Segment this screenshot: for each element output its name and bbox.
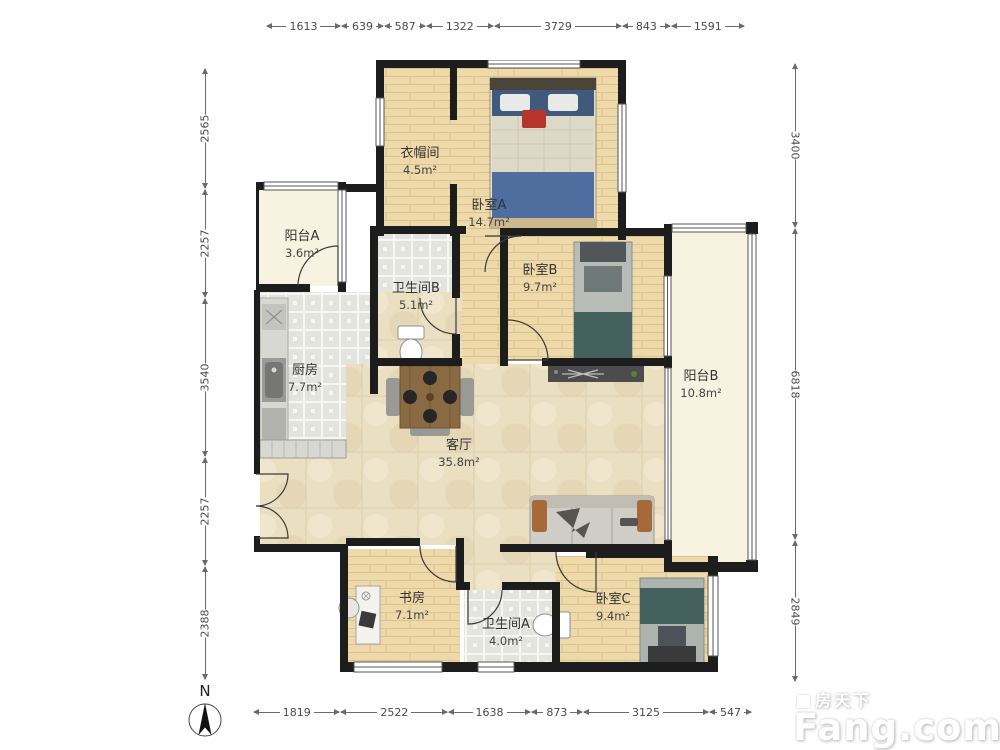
dim-label: 639 bbox=[349, 20, 376, 33]
dim-label: 1322 bbox=[443, 20, 477, 33]
dim-label: 1638 bbox=[473, 706, 507, 719]
dim-label: 2522 bbox=[377, 706, 411, 719]
room-area: 14.7m² bbox=[468, 215, 509, 230]
window-bathroom-a-bottom bbox=[478, 662, 514, 672]
room-label-bedroom-c: 卧室C 9.4m² bbox=[595, 592, 630, 624]
dim-segment: 3729 bbox=[494, 17, 623, 35]
room-label-balcony-a: 阳台A 3.6m² bbox=[285, 229, 320, 261]
room-name: 阳台A bbox=[285, 229, 320, 246]
room-name: 卧室C bbox=[595, 592, 630, 609]
dim-label: 2849 bbox=[786, 597, 805, 625]
room-name: 书房 bbox=[395, 591, 429, 608]
room-label-living: 客厅 35.8m² bbox=[438, 438, 479, 470]
room-area: 4.0m² bbox=[482, 634, 530, 649]
room-name: 卧室A bbox=[468, 198, 509, 215]
room-label-bedroom-b: 卧室B 9.7m² bbox=[523, 263, 558, 295]
room-name: 厨房 bbox=[288, 363, 322, 380]
dim-label: 587 bbox=[392, 20, 419, 33]
compass: N bbox=[186, 684, 224, 743]
room-label-bedroom-a: 卧室A 14.7m² bbox=[468, 198, 509, 230]
dim-label: 1591 bbox=[691, 20, 725, 33]
room-area: 7.1m² bbox=[395, 608, 429, 623]
dim-label: 547 bbox=[717, 706, 744, 719]
floorplan-page: { "dims": { "top": ["1613","639","587","… bbox=[0, 0, 1000, 750]
dim-chain-left: 2565 2257 3540 2257 2388 bbox=[196, 68, 214, 680]
room-label-kitchen: 厨房 7.7m² bbox=[288, 363, 322, 395]
bar-counter bbox=[260, 440, 346, 458]
room-label-study: 书房 7.1m² bbox=[395, 591, 429, 623]
room-label-bathroom-b: 卫生间B 5.1m² bbox=[392, 281, 440, 313]
compass-icon bbox=[186, 701, 224, 739]
dim-segment: 3125 bbox=[583, 703, 709, 721]
window-balcony-b-top bbox=[672, 224, 746, 232]
room-area: 35.8m² bbox=[438, 455, 479, 470]
dim-label: 2388 bbox=[196, 609, 215, 637]
room-area: 4.5m² bbox=[400, 163, 439, 178]
dim-segment: 3540 bbox=[196, 298, 214, 458]
dim-segment: 2565 bbox=[196, 68, 214, 189]
room-label-cloakroom: 衣帽间 4.5m² bbox=[400, 146, 439, 178]
dim-segment: 2522 bbox=[340, 703, 448, 721]
dim-segment: 1613 bbox=[266, 17, 341, 35]
room-area: 9.4m² bbox=[595, 609, 630, 624]
toilet-a bbox=[533, 612, 570, 638]
dim-segment: 873 bbox=[531, 703, 584, 721]
tv-stand bbox=[548, 366, 644, 382]
window-balcony-a-right bbox=[338, 190, 346, 282]
dim-chain-top: 1613 639 587 1322 3729 843 1591 bbox=[266, 17, 745, 35]
room-area: 10.8m² bbox=[680, 386, 721, 401]
window-study-bottom bbox=[354, 662, 442, 672]
dim-label: 2565 bbox=[196, 114, 215, 142]
dim-label: 843 bbox=[633, 20, 660, 33]
room-name: 卫生间B bbox=[392, 281, 440, 298]
dim-segment: 2388 bbox=[196, 566, 214, 680]
dim-chain-right: 3400 6818 2849 bbox=[786, 63, 804, 682]
dim-segment: 2257 bbox=[196, 189, 214, 298]
dim-label: 1613 bbox=[286, 20, 320, 33]
dim-chain-bottom: 1819 2522 1638 873 3125 547 bbox=[253, 703, 752, 721]
dim-segment: 843 bbox=[622, 17, 670, 35]
window-cloakroom-left bbox=[376, 98, 384, 146]
dim-label: 2257 bbox=[196, 229, 215, 257]
fang-watermark: 房天下 Fang.com bbox=[793, 693, 1000, 746]
bed-c bbox=[640, 578, 704, 670]
dim-segment: 587 bbox=[384, 17, 426, 35]
compass-north-label: N bbox=[186, 684, 224, 699]
fang-watermark-en: Fang.com bbox=[793, 709, 1000, 746]
sofa bbox=[530, 496, 654, 548]
window-balcony-b-left bbox=[664, 276, 671, 540]
window-bedroom-c-right bbox=[708, 576, 718, 656]
dim-label: 3400 bbox=[786, 132, 805, 160]
room-area: 3.6m² bbox=[285, 246, 320, 261]
dim-segment: 547 bbox=[709, 703, 752, 721]
window-bedroom-a-top bbox=[488, 60, 580, 68]
dim-label: 6818 bbox=[786, 370, 805, 398]
room-area: 9.7m² bbox=[523, 280, 558, 295]
room-area: 7.7m² bbox=[288, 380, 322, 395]
bed-b bbox=[574, 242, 632, 360]
window-balcony-a-top bbox=[264, 182, 338, 190]
room-label-balcony-b: 阳台B 10.8m² bbox=[680, 369, 721, 401]
dim-segment: 3400 bbox=[786, 63, 804, 228]
dim-segment: 639 bbox=[341, 17, 384, 35]
dim-segment: 1638 bbox=[448, 703, 530, 721]
dim-label: 2257 bbox=[196, 498, 215, 526]
kitchen-counter bbox=[260, 298, 288, 458]
dim-label: 1819 bbox=[280, 706, 314, 719]
dim-segment: 1819 bbox=[253, 703, 340, 721]
room-name: 卧室B bbox=[523, 263, 558, 280]
dim-label: 873 bbox=[543, 706, 570, 719]
room-name: 阳台B bbox=[680, 369, 721, 386]
room-name: 客厅 bbox=[438, 438, 479, 455]
dim-segment: 1591 bbox=[671, 17, 745, 35]
room-area: 5.1m² bbox=[392, 298, 440, 313]
dim-label: 3125 bbox=[629, 706, 663, 719]
room-name: 衣帽间 bbox=[400, 146, 439, 163]
window-bedroom-a-right bbox=[618, 104, 626, 192]
window-balcony-b-right bbox=[748, 234, 756, 560]
dim-segment: 2257 bbox=[196, 457, 214, 566]
dim-label: 3729 bbox=[541, 20, 575, 33]
room-name: 卫生间A bbox=[482, 617, 530, 634]
dim-segment: 1322 bbox=[426, 17, 494, 35]
room-label-bathroom-a: 卫生间A 4.0m² bbox=[482, 617, 530, 649]
dim-label: 3540 bbox=[196, 364, 215, 392]
dim-segment: 6818 bbox=[786, 228, 804, 540]
dim-segment: 2849 bbox=[786, 540, 804, 682]
